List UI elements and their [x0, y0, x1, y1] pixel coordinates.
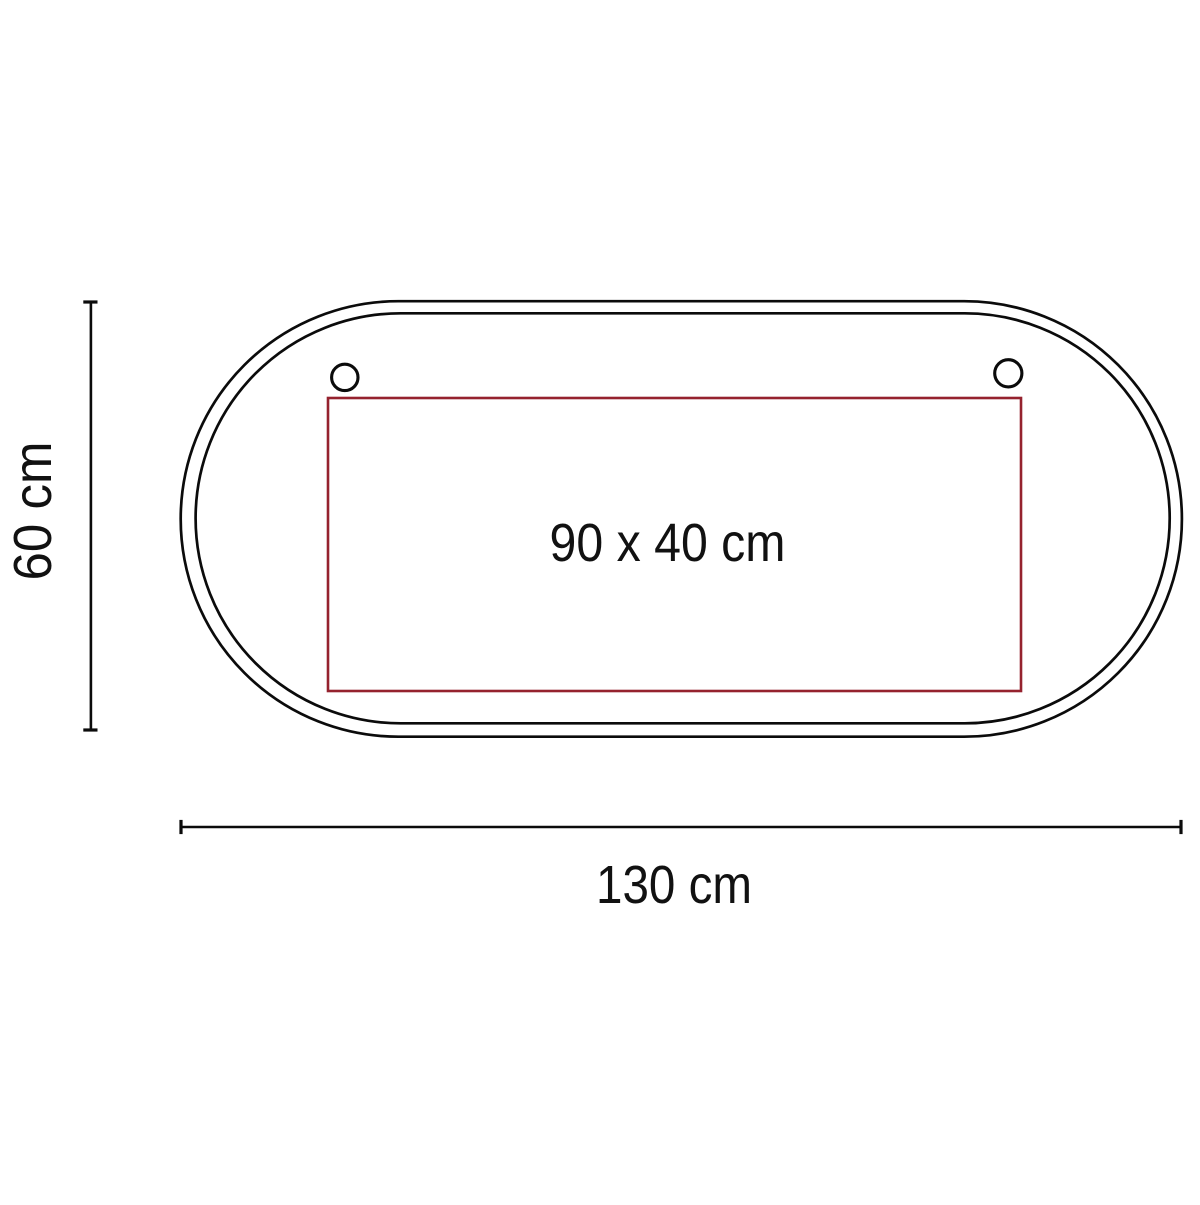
svg-text:130 cm: 130 cm: [596, 855, 752, 915]
svg-text:60 cm: 60 cm: [3, 442, 63, 581]
svg-text:90 x 40 cm: 90 x 40 cm: [550, 513, 786, 573]
